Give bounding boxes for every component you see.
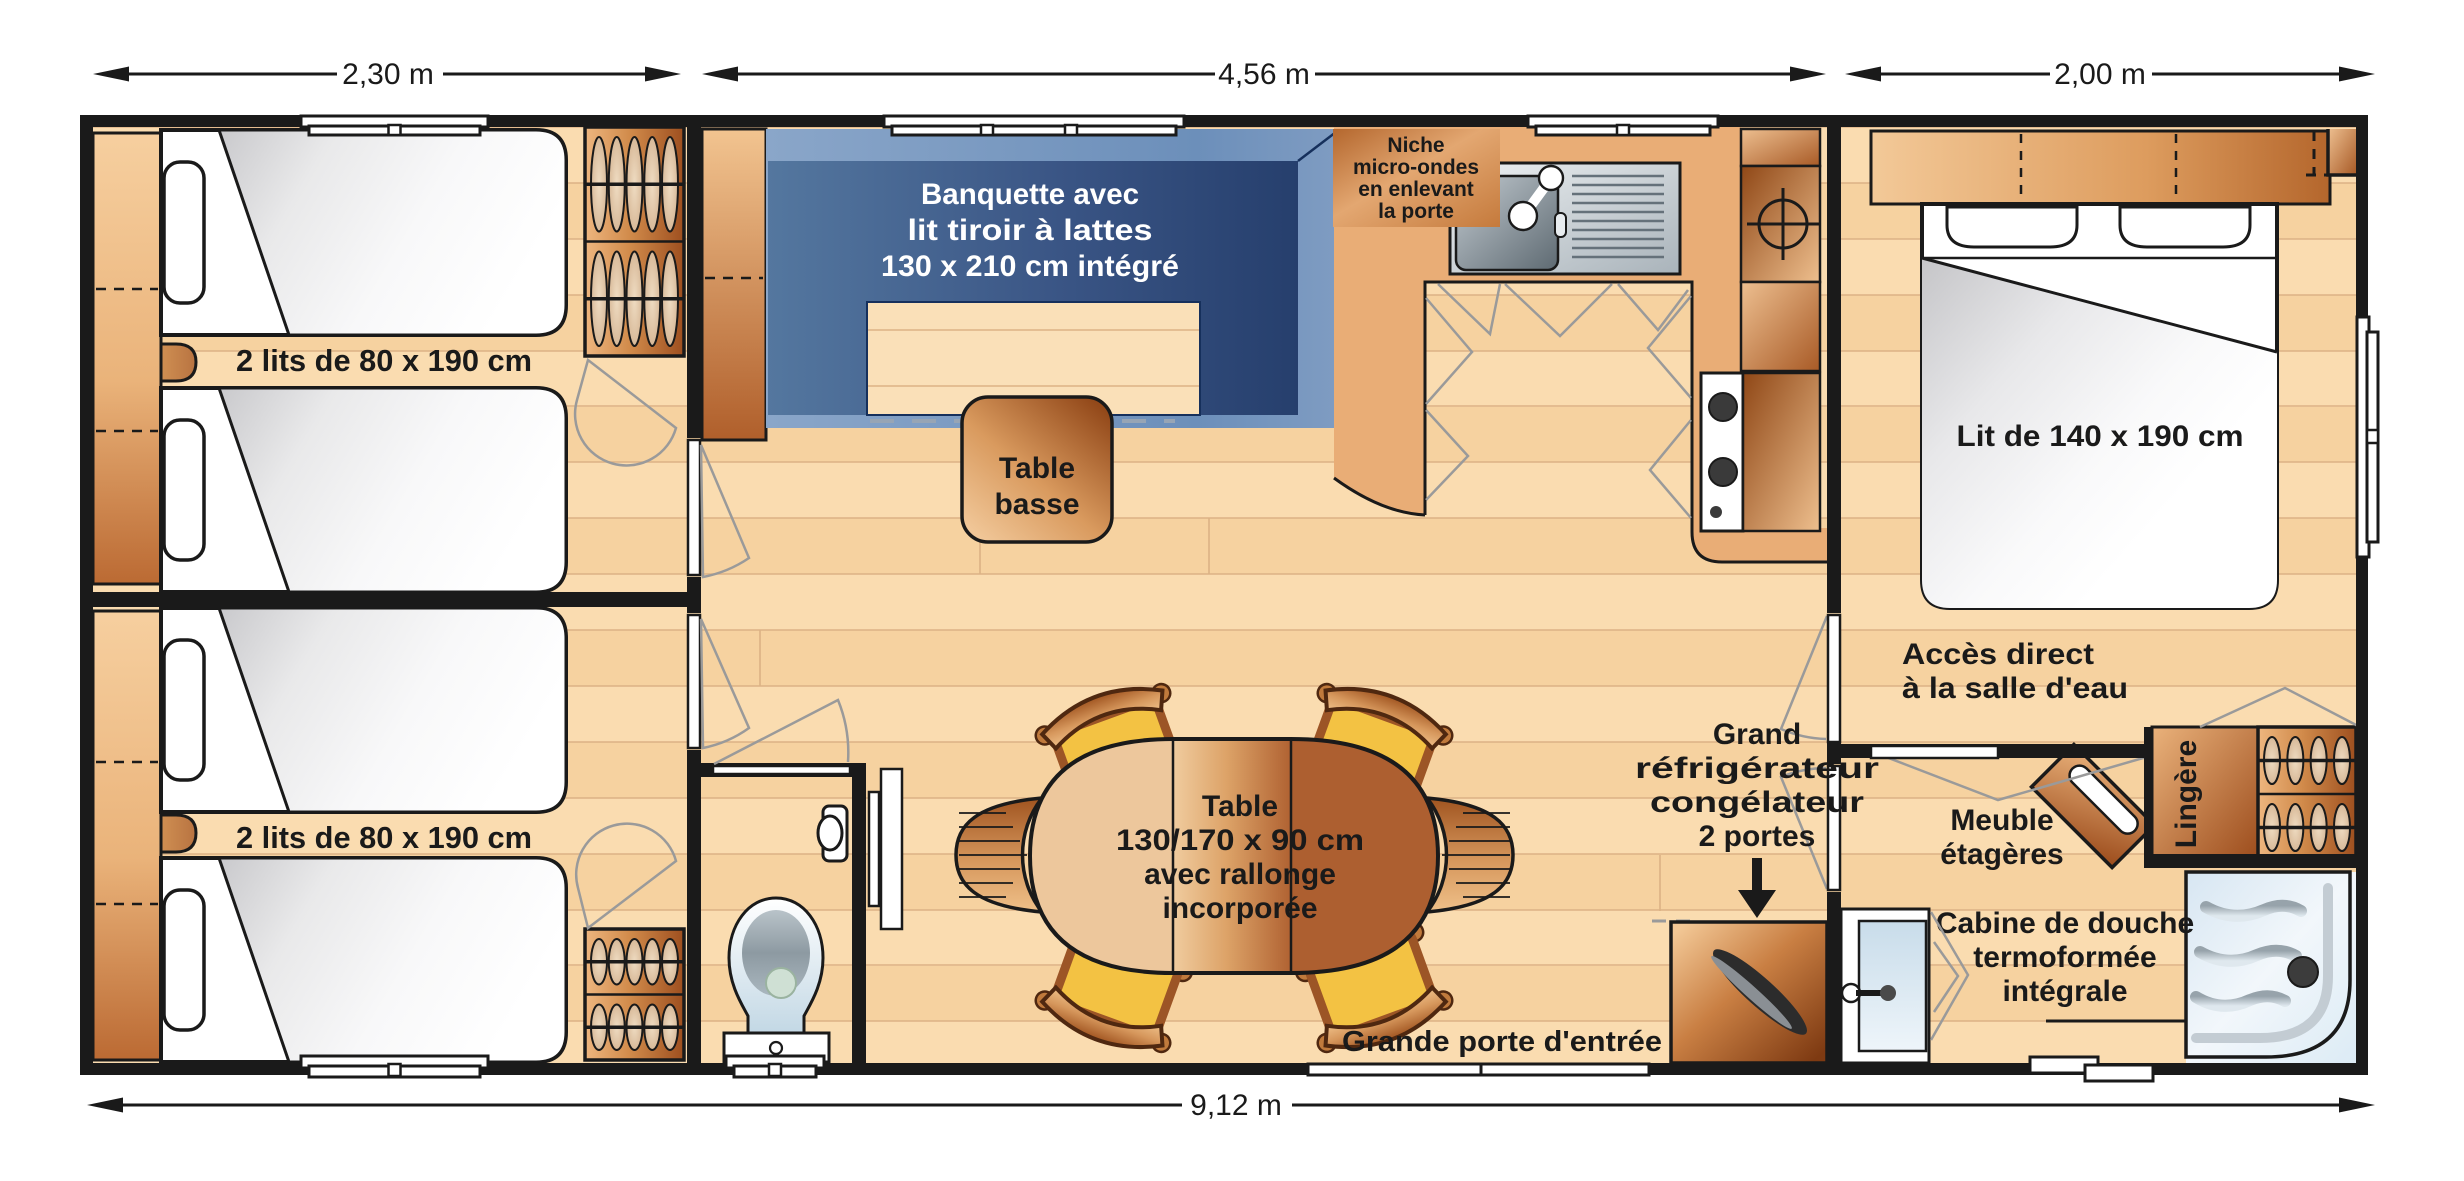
- svg-text:avec rallonge: avec rallonge: [1144, 858, 1336, 891]
- svg-text:2 lits de 80 x 190 cm: 2 lits de 80 x 190 cm: [236, 343, 532, 378]
- svg-text:2 lits de 80 x 190 cm: 2 lits de 80 x 190 cm: [236, 820, 532, 855]
- svg-text:lit tiroir à lattes: lit tiroir à lattes: [908, 214, 1153, 247]
- svg-text:Accès direct: Accès direct: [1902, 638, 2094, 671]
- svg-text:étagères: étagères: [1940, 838, 2063, 871]
- svg-text:9,12 m: 9,12 m: [1190, 1089, 1282, 1122]
- svg-text:Grand: Grand: [1713, 718, 1801, 751]
- svg-text:Lit de 140 x 190 cm: Lit de 140 x 190 cm: [1957, 420, 2244, 453]
- svg-text:intégrale: intégrale: [2002, 975, 2127, 1008]
- svg-text:réfrigérateur: réfrigérateur: [1635, 752, 1879, 785]
- svg-text:incorporée: incorporée: [1162, 892, 1317, 925]
- svg-text:Grande porte d'entrée: Grande porte d'entrée: [1342, 1026, 1662, 1058]
- svg-text:congélateur: congélateur: [1650, 786, 1864, 819]
- svg-text:basse: basse: [994, 488, 1079, 521]
- svg-text:2,00 m: 2,00 m: [2054, 58, 2146, 91]
- svg-text:Lingère: Lingère: [2170, 740, 2203, 848]
- svg-text:Meuble: Meuble: [1950, 804, 2053, 837]
- svg-text:Banquette avec: Banquette avec: [921, 178, 1139, 211]
- svg-text:130 x 210 cm intégré: 130 x 210 cm intégré: [881, 250, 1179, 283]
- svg-text:à la salle d'eau: à la salle d'eau: [1902, 672, 2128, 705]
- svg-text:termoformée: termoformée: [1973, 941, 2156, 974]
- svg-text:2 portes: 2 portes: [1699, 820, 1816, 853]
- svg-text:Cabine de douche: Cabine de douche: [1936, 907, 2194, 940]
- svg-text:Table: Table: [1202, 790, 1278, 823]
- svg-text:micro-ondes: micro-ondes: [1353, 156, 1479, 179]
- svg-text:4,56 m: 4,56 m: [1218, 58, 1310, 91]
- svg-text:Niche: Niche: [1387, 134, 1444, 157]
- svg-text:Table: Table: [999, 452, 1075, 485]
- svg-text:la porte: la porte: [1378, 200, 1454, 223]
- svg-text:en enlevant: en enlevant: [1358, 178, 1474, 201]
- svg-text:130/170 x 90 cm: 130/170 x 90 cm: [1116, 824, 1364, 857]
- svg-text:2,30 m: 2,30 m: [342, 58, 434, 91]
